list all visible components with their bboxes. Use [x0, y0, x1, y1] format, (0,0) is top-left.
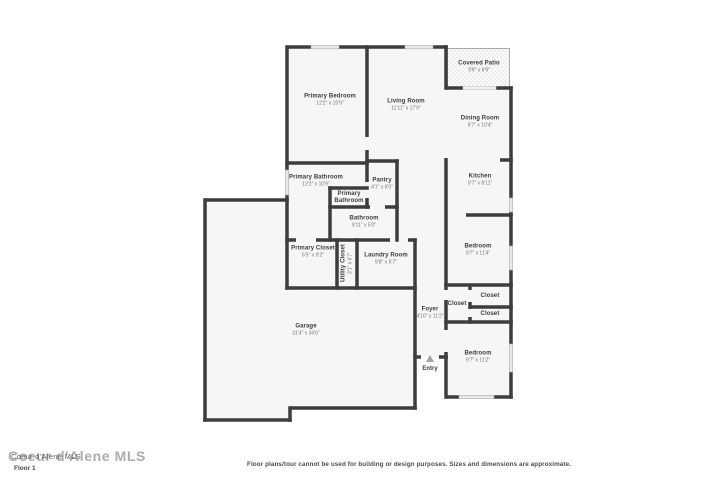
room-dims: 9'7" x 8'11"	[468, 181, 492, 187]
room-label-dining-room: Dining Room 9'7" x 10'4"	[461, 116, 499, 129]
room-dims: 9'9" x 6'9"	[458, 68, 500, 74]
room-dims: 9'7" x 10'4"	[461, 123, 499, 129]
room-dims: 9'7" x 11'4"	[464, 251, 491, 257]
room-label-closet-top: Closet	[481, 293, 500, 299]
room-name: Primary Bathroom	[328, 191, 370, 205]
room-label-primary-closet: Primary Closet 6'5" x 9'2"	[291, 246, 335, 259]
room-name: Utility Closet	[341, 244, 347, 282]
room-label-entry: Entry	[422, 366, 437, 372]
house-floor-fill	[205, 47, 511, 420]
room-name: Bathroom	[349, 216, 378, 222]
room-label-primary-bathroom: Primary Bathroom 12'2" x 10'9"	[289, 175, 343, 188]
entry-direction-icon	[426, 355, 434, 362]
room-label-primary-bedroom: Primary Bedroom 12'2" x 15'9"	[304, 94, 356, 107]
room-label-bedroom-upper: Bedroom 9'7" x 11'4"	[464, 244, 491, 257]
room-dims: 12'2" x 15'9"	[304, 101, 356, 107]
room-dims: 4'1" x 6'0"	[371, 185, 393, 191]
room-name: Bedroom	[464, 351, 491, 357]
room-label-primary-bathroom-small: Primary Bathroom	[328, 191, 370, 205]
room-label-covered-patio: Covered Patio 9'9" x 6'9"	[458, 61, 500, 74]
room-label-closet-hall: Closet	[448, 301, 467, 307]
room-dims: 3'1" x 6'7"	[348, 244, 354, 282]
room-name: Covered Patio	[458, 61, 500, 67]
room-dims: 9'7" x 11'2"	[464, 358, 491, 364]
room-label-closet-bottom: Closet	[481, 311, 500, 317]
floorplan-drawing	[0, 0, 720, 480]
room-name: Kitchen	[468, 174, 492, 180]
room-dims: 11'11" x 17'9"	[387, 106, 424, 112]
room-name: Garage	[292, 324, 319, 330]
room-name: Pantry	[371, 178, 393, 184]
watermark-small-text: Coeur d'Alene MLS	[11, 452, 81, 461]
room-label-garage: Garage 31'4" x 34'6"	[292, 324, 319, 337]
disclaimer-text: Floor plans/tour cannot be used for buil…	[247, 461, 571, 468]
room-name: Living Room	[387, 99, 424, 105]
room-name: Primary Closet	[291, 246, 335, 252]
room-name: Closet	[481, 311, 500, 317]
room-dims: 12'2" x 10'9"	[289, 182, 343, 188]
watermark: Coeur d'Alene MLS Coeur d'Alene MLS	[8, 448, 146, 464]
room-name: Foyer	[416, 307, 443, 313]
room-name: Closet	[448, 301, 467, 307]
room-name: Closet	[481, 293, 500, 299]
room-label-kitchen: Kitchen 9'7" x 8'11"	[468, 174, 492, 187]
floorplan-page: Primary Bedroom 12'2" x 15'9" Living Roo…	[0, 0, 720, 480]
room-label-living-room: Living Room 11'11" x 17'9"	[387, 99, 424, 112]
room-name: Primary Bedroom	[304, 94, 356, 100]
room-label-bathroom: Bathroom 9'11" x 5'0"	[349, 216, 378, 229]
room-label-laundry-room: Laundry Room 9'8" x 6'7"	[364, 253, 408, 266]
room-label-utility-closet: Utility Closet 3'1" x 6'7"	[341, 244, 354, 282]
room-label-bedroom-lower: Bedroom 9'7" x 11'2"	[464, 351, 491, 364]
room-dims: 9'11" x 5'0"	[349, 223, 378, 229]
room-dims: 9'8" x 6'7"	[364, 260, 408, 266]
room-dims: 31'4" x 34'6"	[292, 331, 319, 337]
room-label-foyer: Foyer 4'10" x 11'2"	[416, 307, 443, 320]
room-name: Laundry Room	[364, 253, 408, 259]
room-label-pantry: Pantry 4'1" x 6'0"	[371, 178, 393, 191]
floor-label: Floor 1	[14, 465, 36, 472]
room-name: Dining Room	[461, 116, 499, 122]
room-name: Primary Bathroom	[289, 175, 343, 181]
room-dims: 4'10" x 11'2"	[416, 314, 443, 320]
room-dims: 6'5" x 9'2"	[291, 253, 335, 259]
room-name: Bedroom	[464, 244, 491, 250]
